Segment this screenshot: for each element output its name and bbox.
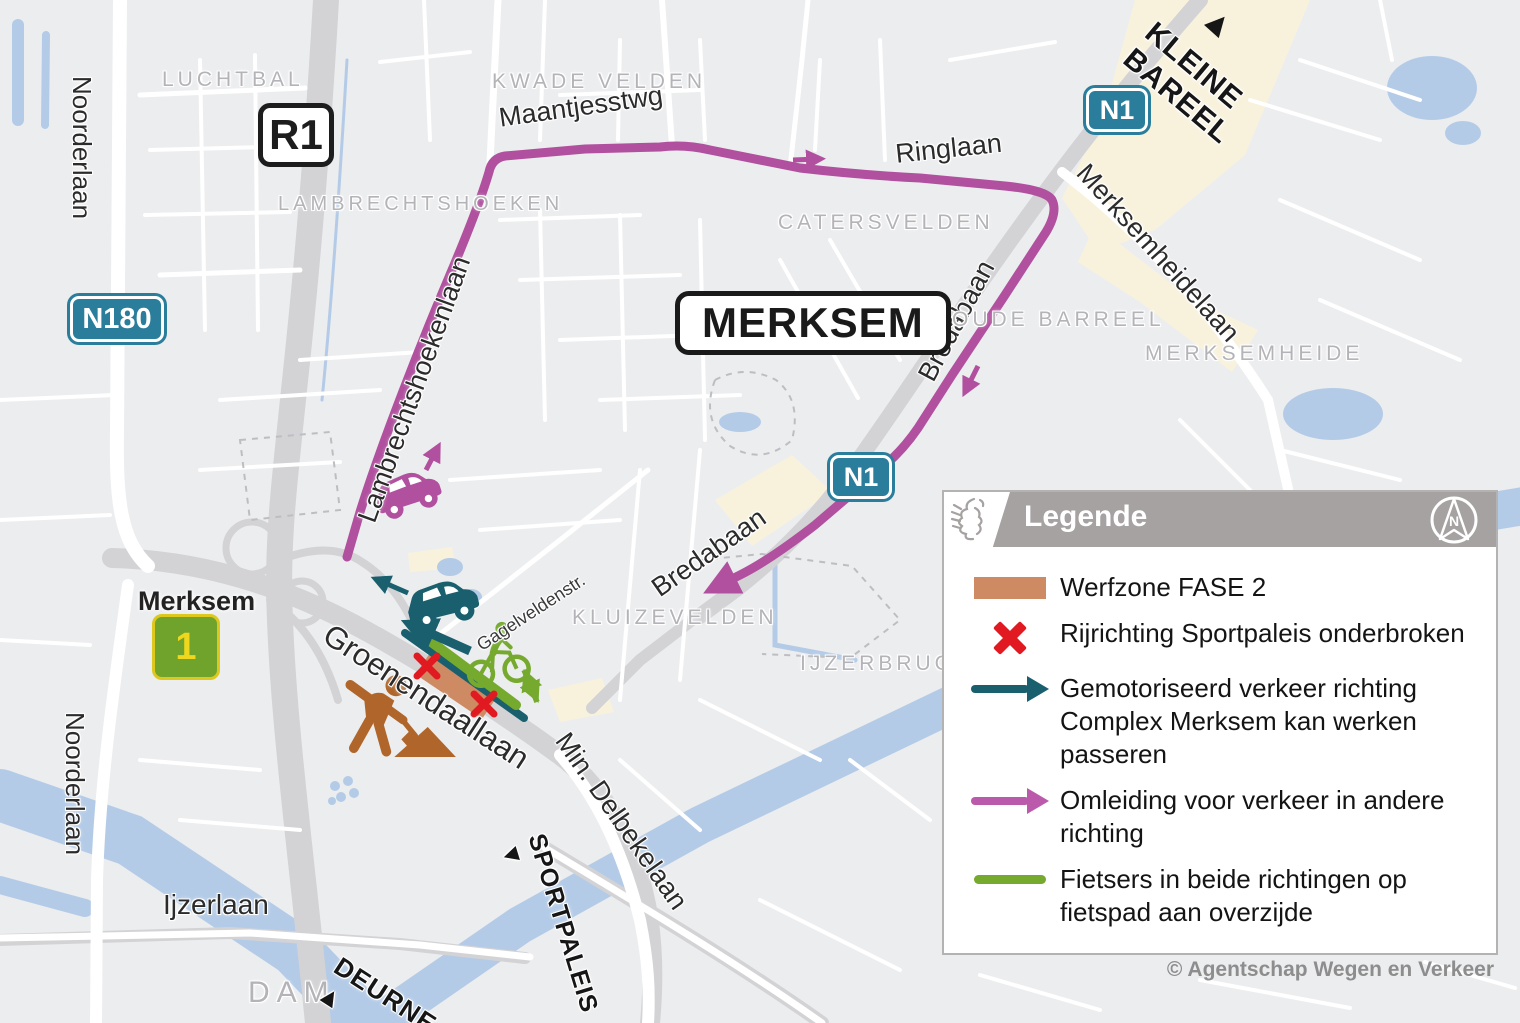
legend-title: Legende: [1024, 500, 1147, 534]
area-luchtbal: LUCHTBAL: [162, 68, 304, 92]
exit-name-merksem: Merksem: [138, 586, 255, 617]
legend-label: Omleiding voor verkeer in andere richtin…: [1060, 784, 1482, 850]
legend-item-fietsers: Fietsers in beide richtingen op fietspad…: [960, 863, 1482, 929]
legend-label: Rijrichting Sportpaleis onderbroken: [1060, 617, 1482, 650]
road-shield-n1-north: N1: [1086, 88, 1148, 132]
compass-icon: N: [1428, 494, 1480, 551]
legend-item-omleiding: Omleiding voor verkeer in andere richtin…: [960, 784, 1482, 850]
copyright-credit: © Agentschap Wegen en Verkeer: [1167, 958, 1494, 982]
legend-header: Legende N: [944, 492, 1496, 547]
area-merksemheide: MERKSEMHEIDE: [1145, 342, 1363, 366]
street-noorderlaan-north: Noorderlaan: [66, 76, 97, 219]
area-lambrechtshoeken: LAMBRECHTSHOEKEN: [278, 193, 563, 216]
road-shield-n180: N180: [70, 296, 164, 342]
road-shield-n1-mid: N1: [830, 455, 892, 499]
flanders-lion-logo: [944, 492, 1010, 547]
detour-arrow-icon: [971, 788, 1049, 814]
compass-letter: N: [1449, 513, 1459, 529]
bike-line-icon: [974, 875, 1046, 884]
exit-number-badge: 1: [152, 614, 220, 680]
closed-x-icon: [989, 617, 1031, 659]
street-ijzerlaan: Ijzerlaan: [163, 889, 269, 921]
area-ijzerbrug: IJZERBRUG: [800, 652, 955, 676]
motor-arrow-icon: [971, 676, 1049, 702]
legend-label: Fietsers in beide richtingen op fietspad…: [1060, 863, 1482, 929]
detour-arrow-north: [426, 449, 437, 470]
legend-label: Gemotoriseerd verkeer richting Complex M…: [1060, 672, 1482, 771]
area-kluizevelden: KLUIZEVELDEN: [572, 606, 778, 630]
street-noorderlaan-south: Noorderlaan: [59, 712, 90, 855]
legend-item-onderbroken: Rijrichting Sportpaleis onderbroken: [960, 617, 1482, 659]
legend-panel: Legende N Werfzone FASE 2 Rijrichting Sp…: [942, 490, 1498, 955]
road-shield-r1: R1: [258, 103, 334, 167]
detour-arrow-south: [966, 366, 978, 390]
area-kwade-velden: KWADE VELDEN: [492, 70, 706, 94]
detour-map: Noorderlaan Noorderlaan Maantjesstwg Rin…: [0, 0, 1520, 1023]
city-label-merksem: MERKSEM: [675, 291, 951, 355]
detour-arrow-east: [793, 159, 818, 160]
legend-item-gemotoriseerd: Gemotoriseerd verkeer richting Complex M…: [960, 672, 1482, 771]
legend-label: Werfzone FASE 2: [1060, 571, 1482, 604]
area-oude-barreel: OUDE BARREEL: [952, 308, 1165, 332]
area-catersvelden: CATERSVELDEN: [778, 211, 994, 235]
legend-item-werfzone: Werfzone FASE 2: [960, 571, 1482, 604]
workzone-swatch: [974, 577, 1046, 599]
